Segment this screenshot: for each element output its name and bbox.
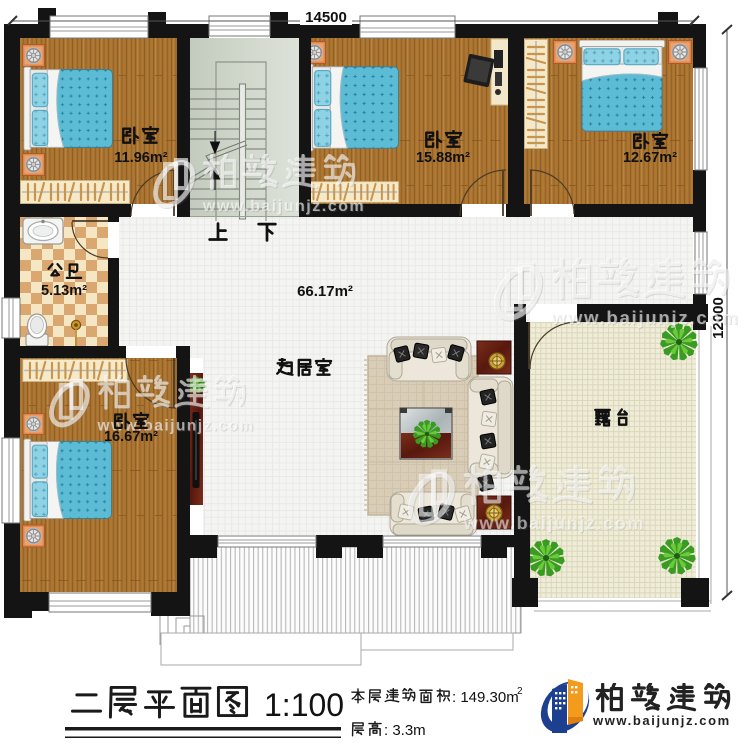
svg-text:14500: 14500 [305,9,347,26]
svg-text:1:100: 1:100 [264,687,344,723]
svg-text:2: 2 [517,686,523,697]
svg-text:: 3.3m: : 3.3m [384,722,426,739]
svg-text:11.96m²: 11.96m² [114,150,167,166]
svg-text:15.88m²: 15.88m² [416,150,470,166]
svg-text:www.baijunjz.com: www.baijunjz.com [592,713,731,728]
svg-text:66.17m²: 66.17m² [297,283,353,300]
svg-text:16.67m²: 16.67m² [104,429,158,445]
svg-text:5.13m²: 5.13m² [41,283,87,299]
svg-text:12.67m²: 12.67m² [623,150,677,166]
svg-text:: 149.30m: : 149.30m [452,689,519,706]
